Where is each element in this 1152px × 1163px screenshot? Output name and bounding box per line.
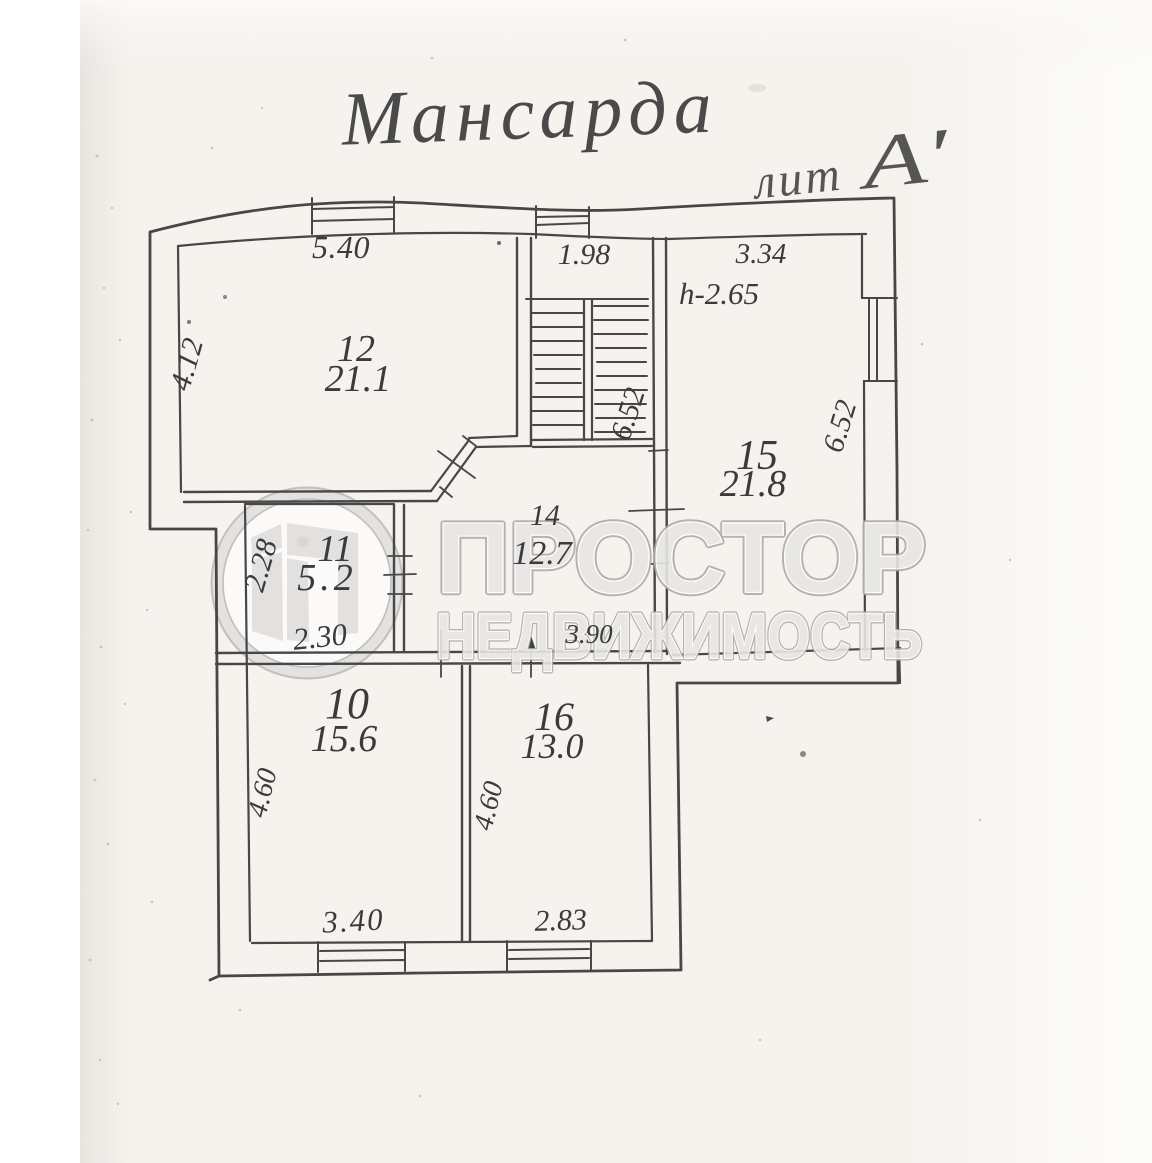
svg-text:15.6: 15.6 [311,718,378,760]
svg-text:НЕДВИЖИМОСТЬ: НЕДВИЖИМОСТЬ [436,600,922,672]
svg-text:А′: А′ [851,113,954,206]
svg-text:14: 14 [530,499,560,532]
svg-text:3.90: 3.90 [564,619,613,649]
svg-text:1.98: 1.98 [558,238,611,271]
svg-text:Мансарда: Мансарда [339,65,720,162]
svg-text:2.30: 2.30 [291,616,349,657]
svg-text:3.34: 3.34 [735,238,787,270]
svg-text:лит: лит [749,148,846,210]
svg-text:21.8: 21.8 [720,463,787,505]
svg-text:5.2: 5.2 [297,557,357,599]
svg-text:12.7: 12.7 [512,535,574,572]
svg-text:21.1: 21.1 [325,358,392,400]
svg-text:13.0: 13.0 [521,726,584,766]
svg-text:3.40: 3.40 [320,901,385,939]
svg-text:ПРОСТОР: ПРОСТОР [437,502,926,613]
svg-text:2.83: 2.83 [534,903,588,938]
svg-text:5.40: 5.40 [312,229,370,265]
svg-text:h-2.65: h-2.65 [679,276,759,311]
